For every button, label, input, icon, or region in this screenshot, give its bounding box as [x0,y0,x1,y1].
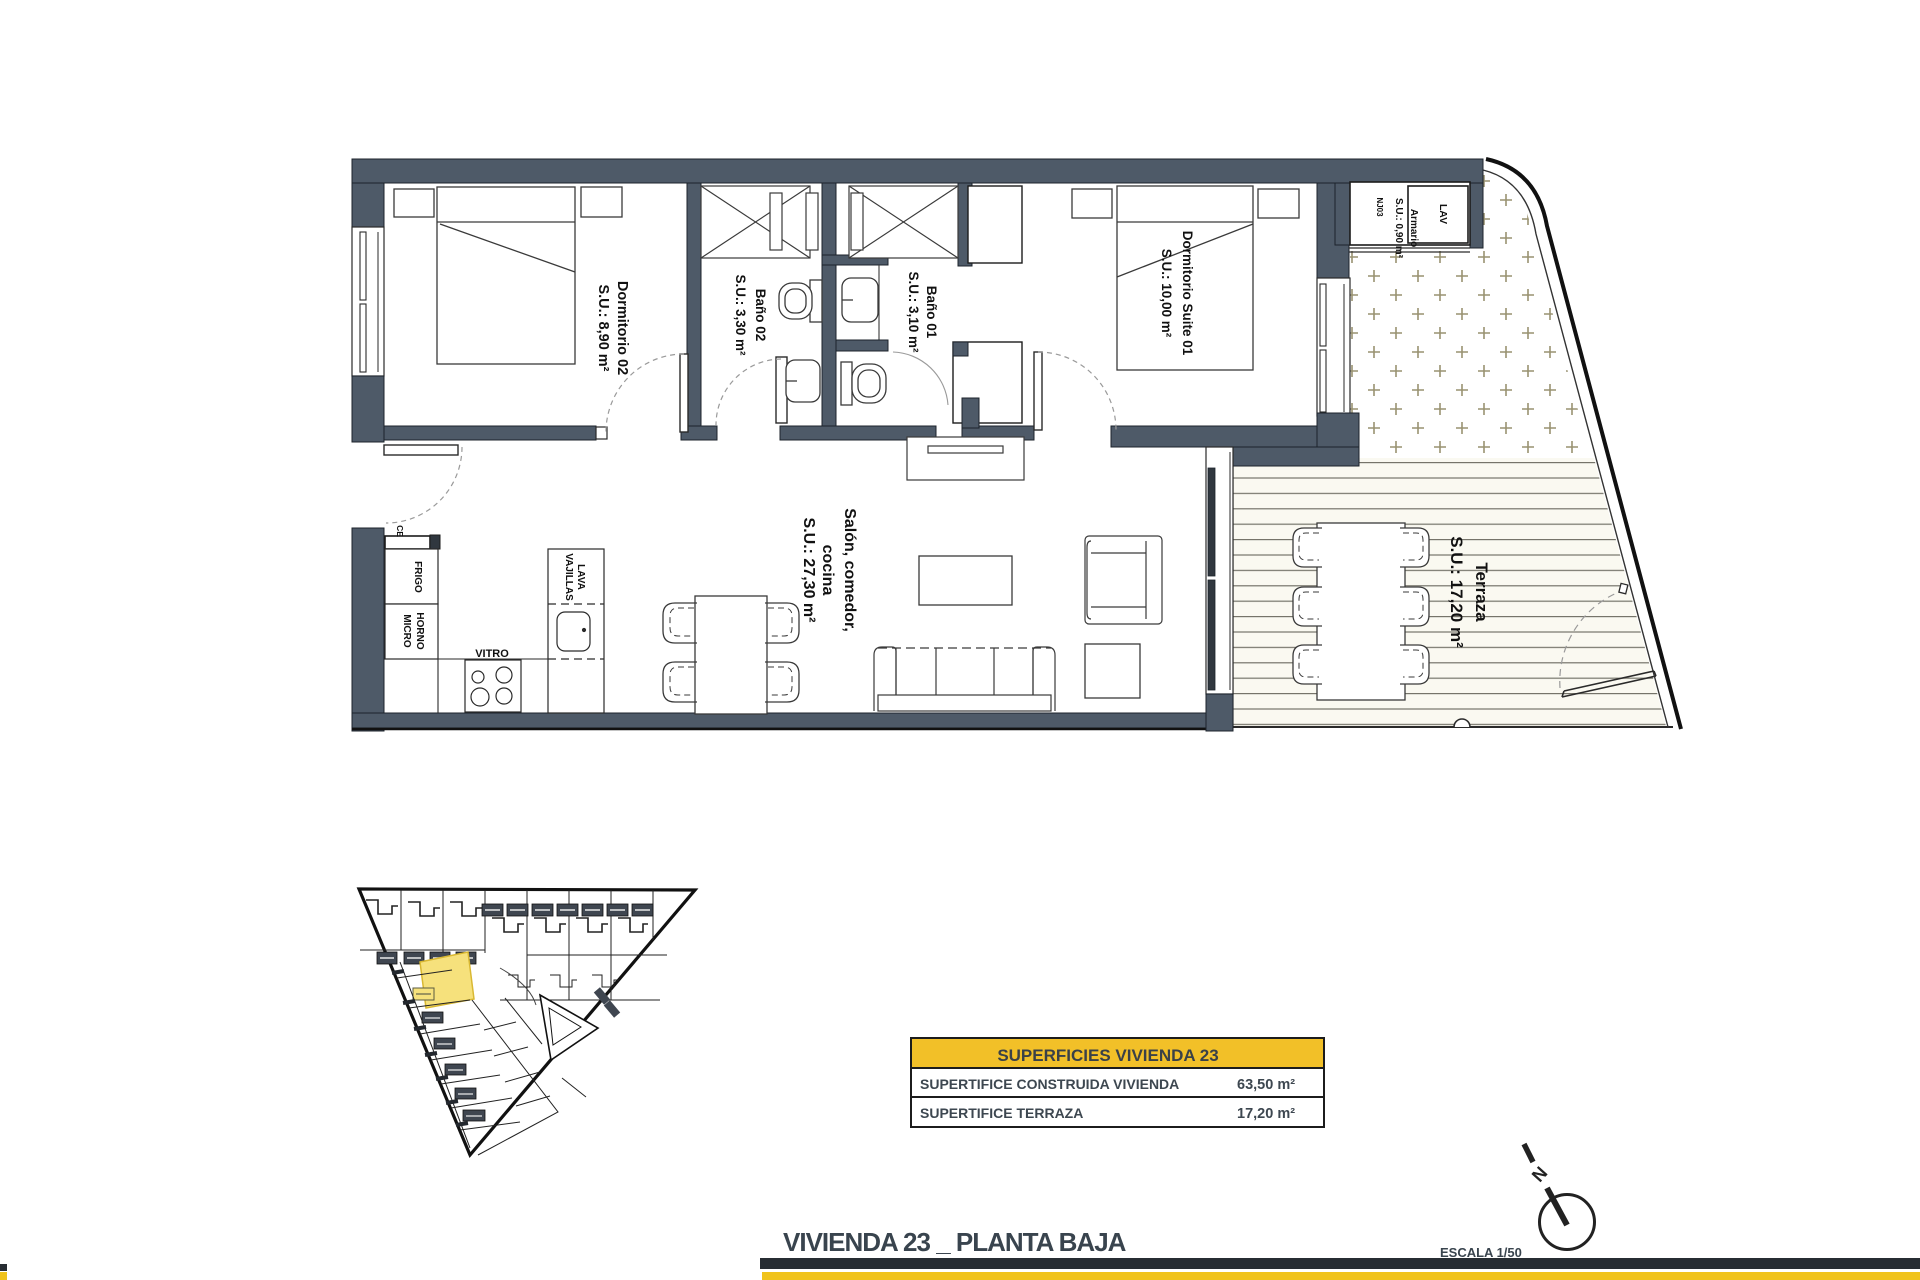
svg-text:N: N [1528,1163,1552,1186]
svg-text:SUPERTIFICE CONSTRUIDA VIVIEND: SUPERTIFICE CONSTRUIDA VIVIENDA [920,1076,1179,1092]
svg-text:Baño 01S.U.: 3,10 m²: Baño 01S.U.: 3,10 m² [906,271,939,353]
svg-text:CE: CE [395,525,405,537]
svg-text:63,50 m²: 63,50 m² [1237,1077,1295,1093]
svg-text:NJ03: NJ03 [1375,197,1384,217]
svg-text:VITRO: VITRO [475,648,509,660]
svg-text:FRIGO: FRIGO [412,561,423,593]
svg-text:SUPERFICIES VIVIENDA 23: SUPERFICIES VIVIENDA 23 [997,1046,1218,1065]
svg-text:Baño 02S.U.: 3,30 m²: Baño 02S.U.: 3,30 m² [733,274,768,356]
svg-text:17,20 m²: 17,20 m² [1237,1106,1295,1122]
svg-text:Dormitorio 02S.U.: 8,90 m²: Dormitorio 02S.U.: 8,90 m² [595,281,630,375]
svg-text:LAV: LAV [1437,204,1449,224]
svg-text:ESCALA 1/50: ESCALA 1/50 [1440,1245,1522,1260]
svg-text:VIVIENDA 23 _ PLANTA BAJA: VIVIENDA 23 _ PLANTA BAJA [783,1227,1127,1257]
svg-text:SUPERTIFICE TERRAZA: SUPERTIFICE TERRAZA [920,1105,1083,1121]
svg-text:Salón, comedor,cocinaS.U.: 27,: Salón, comedor,cocinaS.U.: 27,30 m² [800,508,858,632]
